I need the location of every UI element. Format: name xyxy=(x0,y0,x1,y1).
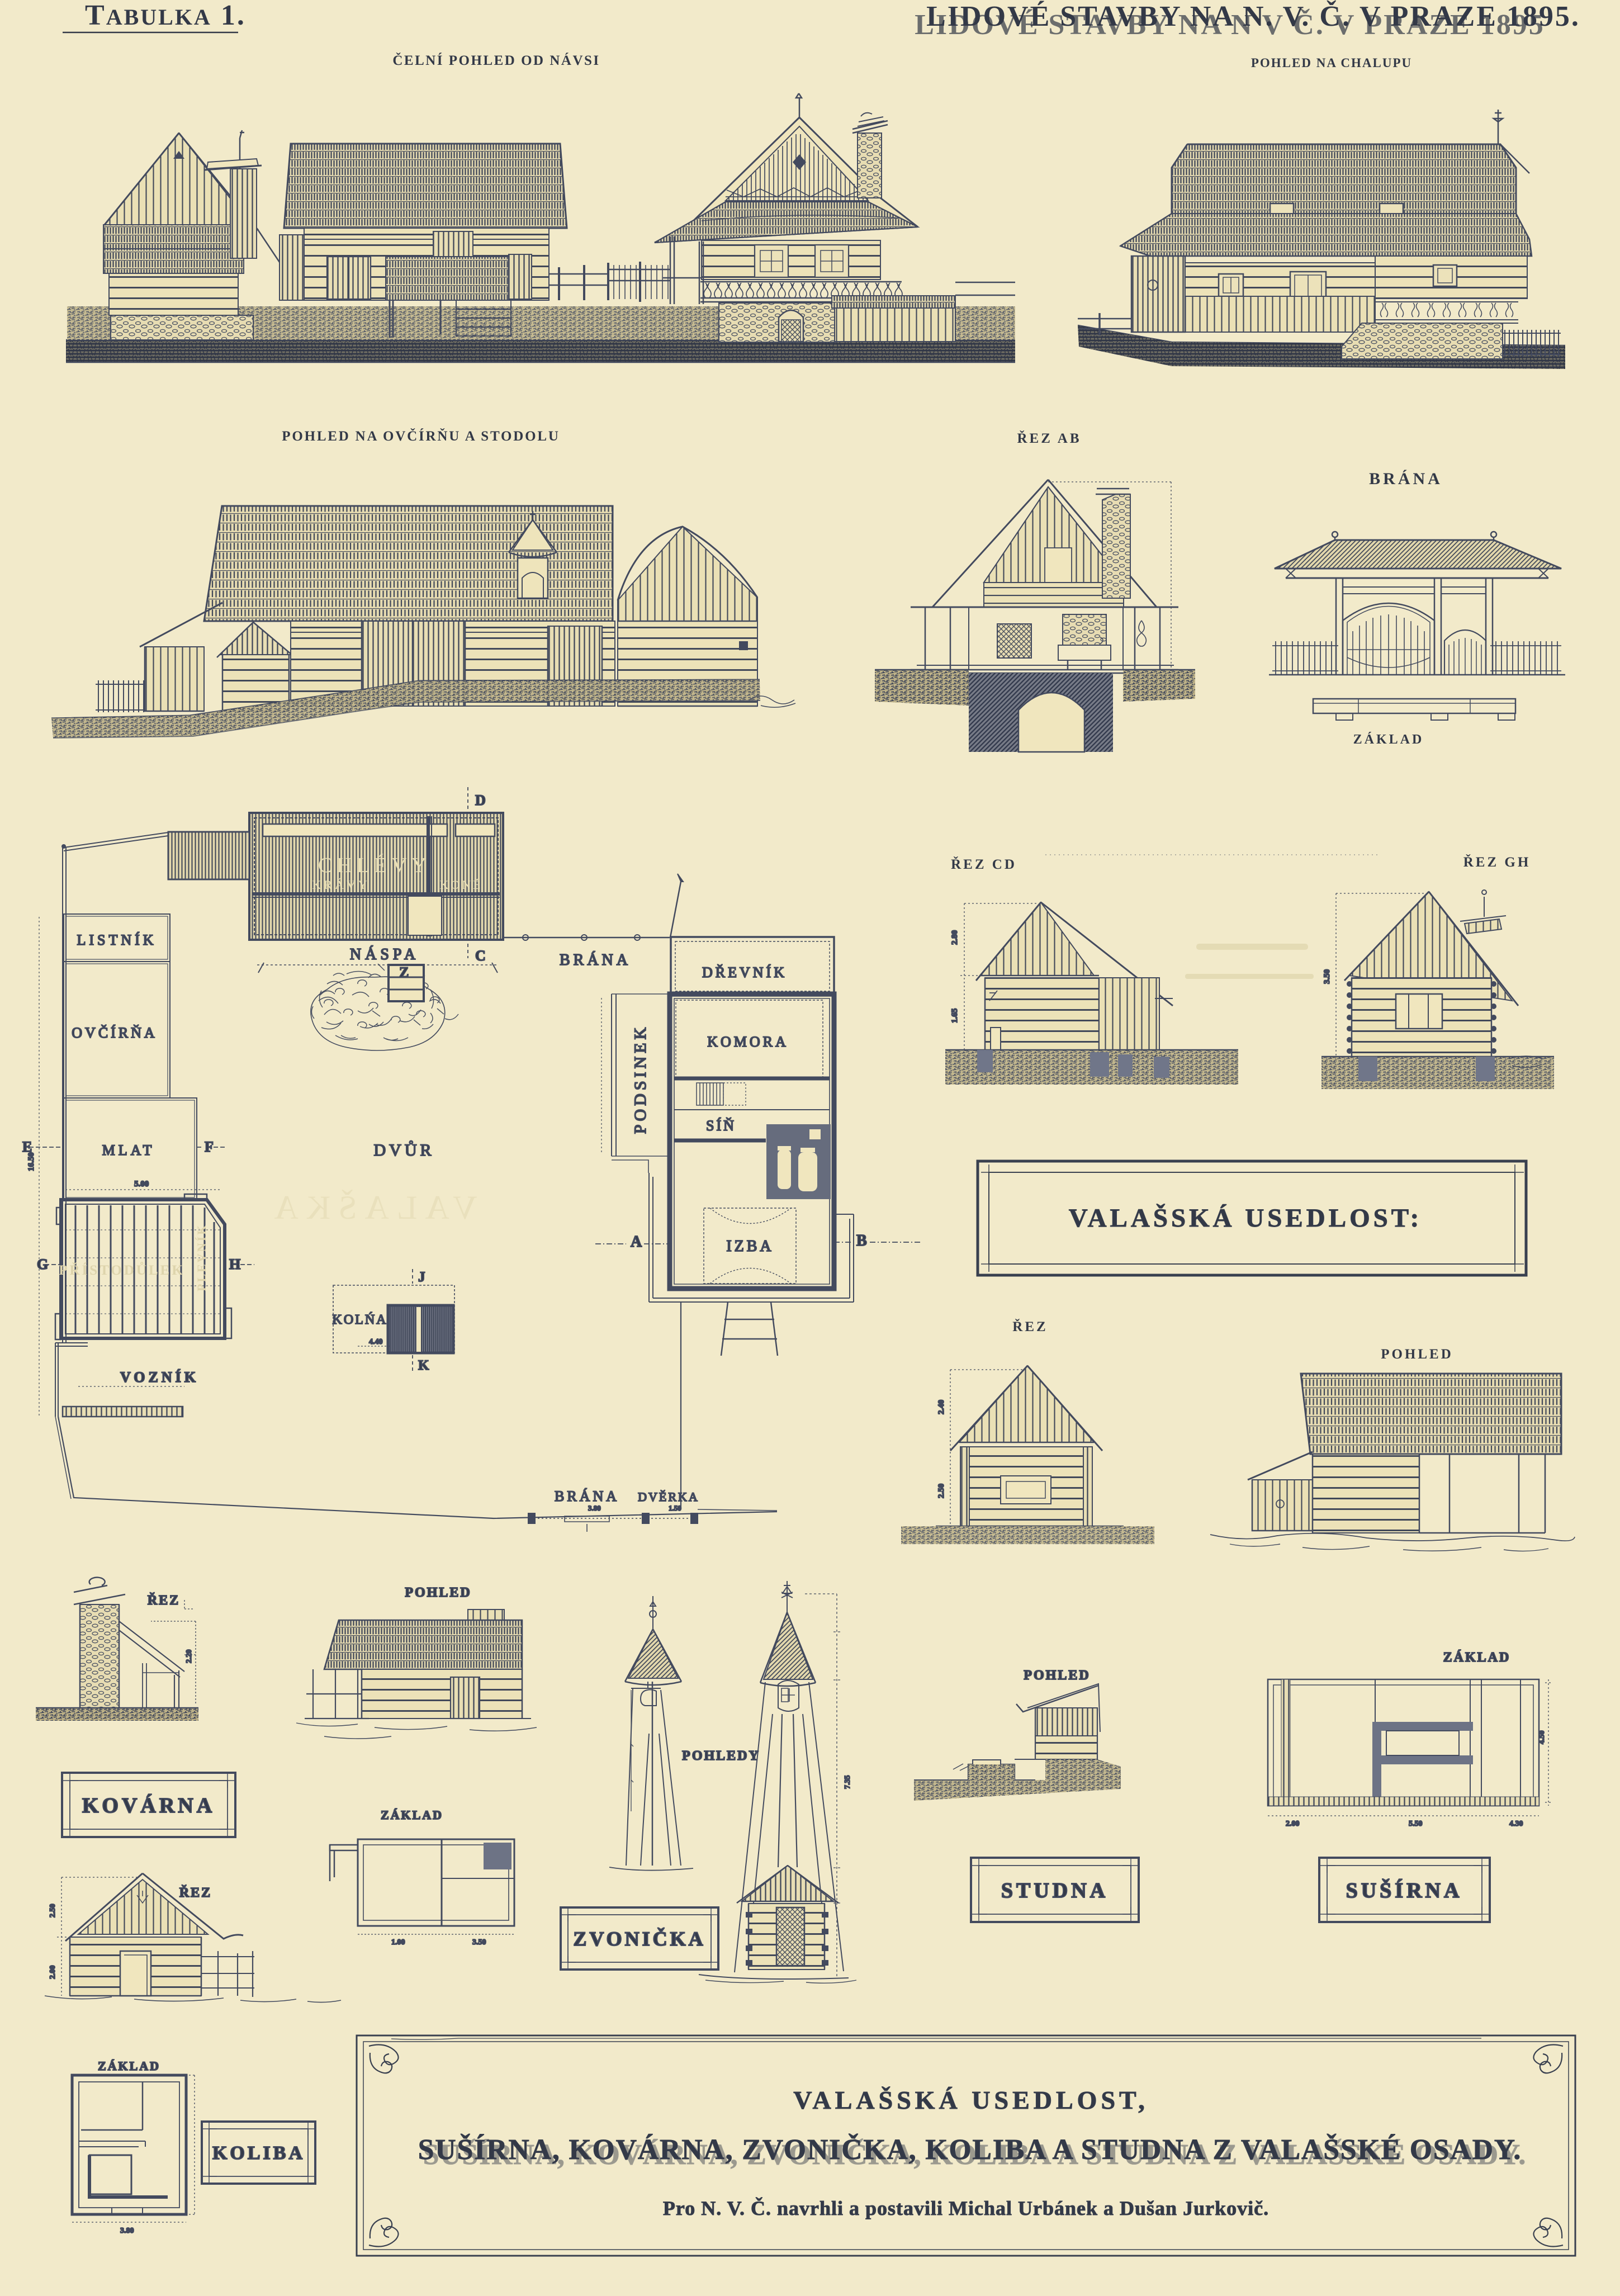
svg-text:LISTNÍK: LISTNÍK xyxy=(77,932,157,948)
svg-text:STUDNA: STUDNA xyxy=(1001,1879,1109,1902)
svg-text:DVĚRKA: DVĚRKA xyxy=(638,1490,699,1504)
svg-text:3.80: 3.80 xyxy=(588,1504,601,1512)
svg-text:POHLED NA CHALUPU: POHLED NA CHALUPU xyxy=(1251,56,1412,70)
svg-text:ŘEZ AB: ŘEZ AB xyxy=(1017,430,1081,446)
svg-text:ŘEZ: ŘEZ xyxy=(1012,1319,1048,1334)
svg-text:5.00: 5.00 xyxy=(134,1180,149,1189)
svg-text:POHLED NA OVČÍRŇU A STODOLU: POHLED NA OVČÍRŇU A STODOLU xyxy=(282,428,560,444)
svg-text:VALAŠSKÁ USEDLOST:: VALAŠSKÁ USEDLOST: xyxy=(1069,1204,1423,1233)
svg-text:VALAŠSKÁ USEDLOST,: VALAŠSKÁ USEDLOST, xyxy=(793,2086,1149,2114)
svg-text:POHLED: POHLED xyxy=(405,1585,471,1600)
svg-text:3.50: 3.50 xyxy=(1323,969,1332,984)
svg-text:2.50: 2.50 xyxy=(49,1904,57,1918)
svg-text:H: H xyxy=(229,1256,240,1272)
svg-text:BRÁNA: BRÁNA xyxy=(560,951,631,969)
svg-text:4.40: 4.40 xyxy=(369,1338,383,1346)
svg-text:IZBA: IZBA xyxy=(726,1238,774,1255)
svg-text:KOVÁRNA: KOVÁRNA xyxy=(82,1794,215,1817)
svg-text:NÁSPA: NÁSPA xyxy=(350,946,419,963)
svg-text:KOMORA: KOMORA xyxy=(707,1034,789,1050)
svg-text:2.20: 2.20 xyxy=(185,1650,193,1664)
svg-text:2.00: 2.00 xyxy=(49,1966,57,1980)
svg-text:DVŮR: DVŮR xyxy=(373,1140,434,1159)
svg-text:2.00: 2.00 xyxy=(1286,1820,1300,1828)
svg-text:F: F xyxy=(205,1139,214,1155)
svg-text:KOLIBA: KOLIBA xyxy=(212,2143,305,2164)
svg-text:BRÁNA: BRÁNA xyxy=(555,1488,619,1504)
svg-text:PŘÍSTODŮLEK: PŘÍSTODŮLEK xyxy=(59,1261,185,1278)
svg-text:KOLŃA: KOLŃA xyxy=(333,1313,388,1327)
svg-text:2.50: 2.50 xyxy=(937,1484,946,1498)
svg-text:ZÁKLAD: ZÁKLAD xyxy=(381,1808,443,1822)
svg-text:PLEVNÍK: PLEVNÍK xyxy=(195,1224,209,1291)
svg-text:LIDOVÉ STAVBY NA N. V. Č. V PR: LIDOVÉ STAVBY NA N. V. Č. V PRAZE 1895. xyxy=(926,0,1580,32)
svg-text:B: B xyxy=(856,1232,867,1249)
svg-text:16.50: 16.50 xyxy=(27,1152,36,1171)
svg-text:DŘEVNÍK: DŘEVNÍK xyxy=(702,964,787,981)
svg-text:2.40: 2.40 xyxy=(937,1400,946,1414)
svg-text:ČELNÍ POHLED OD NÁVSI: ČELNÍ POHLED OD NÁVSI xyxy=(392,52,600,68)
svg-text:POHLEDY: POHLEDY xyxy=(682,1749,760,1763)
svg-text:KONĚ: KONĚ xyxy=(439,878,482,892)
svg-text:3.80: 3.80 xyxy=(120,2227,134,2235)
svg-text:4.30: 4.30 xyxy=(1509,1820,1523,1828)
svg-text:BRÁNA: BRÁNA xyxy=(1369,470,1443,488)
svg-text:VALAŠKA: VALAŠKA xyxy=(267,1189,477,1226)
svg-text:1.50: 1.50 xyxy=(669,1504,681,1512)
svg-text:SUŠÍRNA, KOVÁRNA, ZVONIČKA, KO: SUŠÍRNA, KOVÁRNA, ZVONIČKA, KOLIBA A STU… xyxy=(418,2134,1522,2166)
svg-text:ŘEZ: ŘEZ xyxy=(148,1593,180,1608)
svg-text:Pro N. V. Č. navrhli a postavi: Pro N. V. Č. navrhli a postavili Michal … xyxy=(663,2197,1269,2219)
svg-text:KRÁVY: KRÁVY xyxy=(312,878,370,892)
svg-text:SUŠÍRNA: SUŠÍRNA xyxy=(1346,1878,1463,1902)
svg-text:POHLED: POHLED xyxy=(1024,1668,1090,1683)
svg-text:ZÁKLAD: ZÁKLAD xyxy=(1443,1650,1511,1665)
svg-text:D: D xyxy=(475,792,486,808)
svg-text:1.65: 1.65 xyxy=(950,1009,959,1023)
svg-text:TABULKA 1.: TABULKA 1. xyxy=(85,0,246,31)
svg-text:ZÁKLAD: ZÁKLAD xyxy=(98,2059,160,2073)
svg-text:VOZNÍK: VOZNÍK xyxy=(120,1369,199,1385)
svg-text:A: A xyxy=(631,1233,642,1251)
svg-text:3.50: 3.50 xyxy=(472,1938,486,1947)
svg-text:CHLÉVY: CHLÉVY xyxy=(318,854,431,877)
svg-text:5.50: 5.50 xyxy=(1409,1820,1423,1828)
svg-text:ŘEZ: ŘEZ xyxy=(179,1885,212,1900)
svg-text:1.00: 1.00 xyxy=(391,1938,405,1947)
svg-text:ŘEZ CD: ŘEZ CD xyxy=(951,856,1017,872)
svg-text:ŘEZ GH: ŘEZ GH xyxy=(1463,854,1531,870)
svg-text:Z: Z xyxy=(399,964,409,981)
svg-text:MLAT: MLAT xyxy=(102,1142,155,1158)
svg-text:ZÁKLAD: ZÁKLAD xyxy=(1353,732,1424,747)
svg-text:J: J xyxy=(418,1270,425,1285)
svg-text:7.35: 7.35 xyxy=(844,1776,852,1790)
svg-text:SÍŇ: SÍŇ xyxy=(706,1118,736,1134)
svg-text:POHLED: POHLED xyxy=(1381,1347,1453,1362)
svg-text:2.80: 2.80 xyxy=(950,930,959,945)
svg-text:OVČÍRŇA: OVČÍRŇA xyxy=(72,1025,157,1041)
svg-text:PODSINEK: PODSINEK xyxy=(631,1024,650,1134)
svg-text:ZVONIČKA: ZVONIČKA xyxy=(573,1928,705,1950)
svg-text:4.50: 4.50 xyxy=(1538,1731,1546,1745)
svg-text:K: K xyxy=(418,1358,429,1373)
svg-text:C: C xyxy=(475,948,486,964)
